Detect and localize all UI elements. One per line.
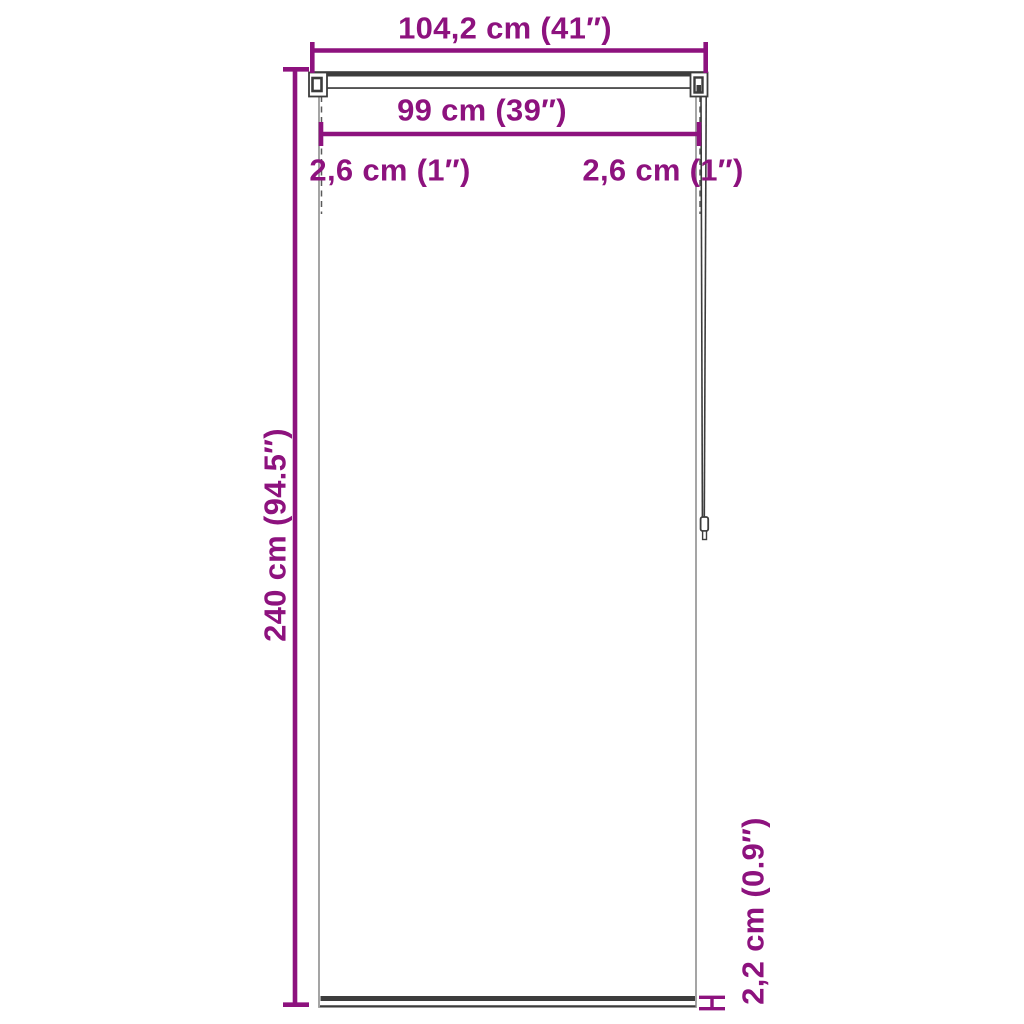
height-label: 240 cm (94.5″) xyxy=(260,428,291,642)
bottom-weight-bar xyxy=(321,996,696,1001)
left-margin-label: 2,6 cm (1″) xyxy=(309,155,470,186)
fabric-width-label: 99 cm (39″) xyxy=(397,95,567,126)
bottom-bar-height-label: 2,2 cm (0.9″) xyxy=(738,817,769,1005)
total-width-dimension xyxy=(312,42,706,73)
total-width-label: 104,2 cm (41″) xyxy=(398,13,612,44)
diagram-graphics xyxy=(0,0,1024,1024)
right-margin-label: 2,6 cm (1″) xyxy=(582,155,743,186)
blind-fabric xyxy=(319,88,696,1007)
bracket-left-pin xyxy=(313,78,322,91)
roller-blind-dimension-diagram: 104,2 cm (41″) 99 cm (39″) 2,6 cm (1″) 2… xyxy=(0,0,1024,1024)
cord-weight xyxy=(701,517,709,531)
fabric-outline xyxy=(319,88,696,1007)
bracket-right-pin xyxy=(697,85,702,92)
cord-weight-tip xyxy=(703,531,707,540)
bottom-bar-dimension xyxy=(699,997,725,1009)
